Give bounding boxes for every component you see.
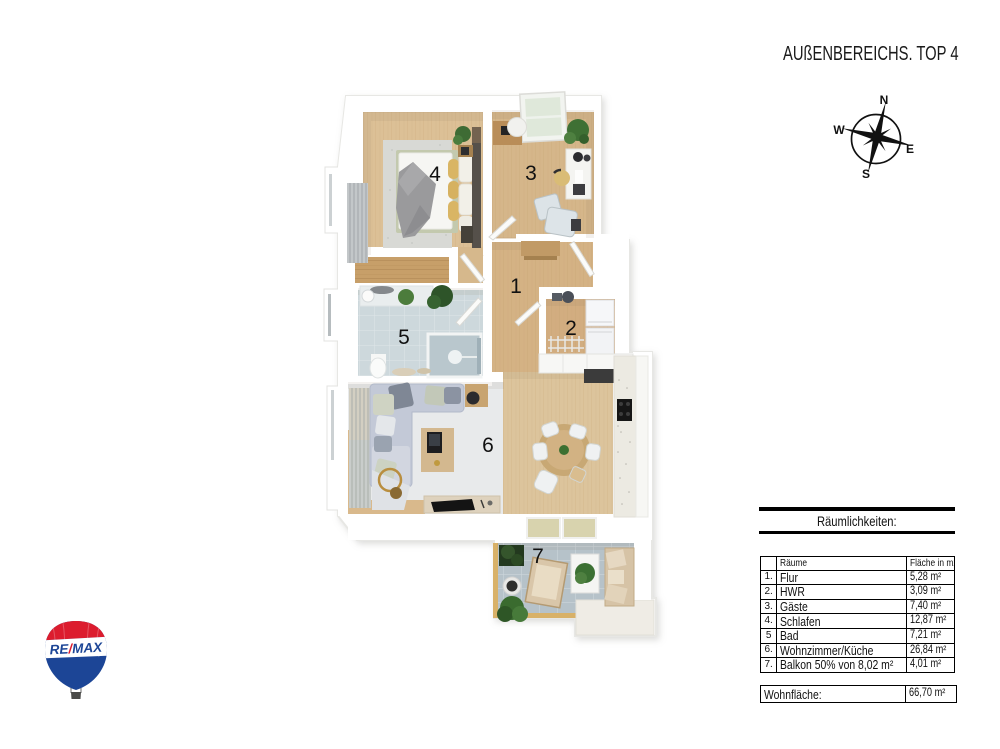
svg-text:3: 3 bbox=[525, 162, 537, 185]
svg-text:5: 5 bbox=[398, 326, 410, 349]
svg-text:E: E bbox=[906, 142, 914, 156]
svg-text:2: 2 bbox=[565, 317, 577, 340]
svg-text:N: N bbox=[880, 93, 889, 107]
svg-text:W: W bbox=[833, 123, 845, 137]
svg-text:6: 6 bbox=[482, 434, 494, 457]
svg-text:1: 1 bbox=[510, 275, 522, 298]
svg-text:RE/MAX: RE/MAX bbox=[49, 640, 103, 658]
svg-text:4: 4 bbox=[429, 163, 441, 186]
svg-text:7: 7 bbox=[532, 545, 544, 568]
svg-text:S: S bbox=[862, 167, 870, 181]
